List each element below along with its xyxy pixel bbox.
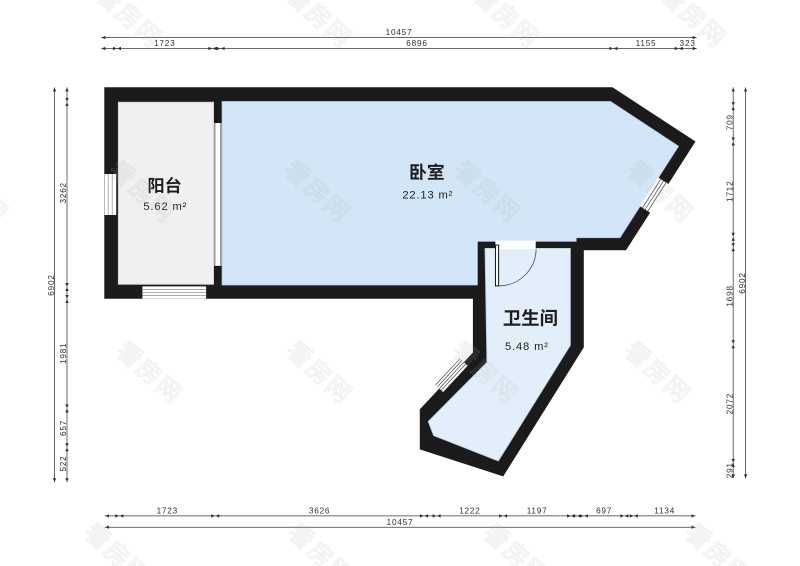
svg-text:6896: 6896 (406, 39, 427, 48)
svg-text:5.48 m²: 5.48 m² (505, 341, 549, 353)
svg-text:2072: 2072 (725, 393, 734, 414)
svg-text:10457: 10457 (386, 28, 413, 37)
svg-text:1723: 1723 (157, 507, 178, 516)
svg-text:657: 657 (59, 420, 68, 436)
svg-text:522: 522 (59, 455, 68, 471)
svg-text:697: 697 (596, 507, 612, 516)
svg-text:3262: 3262 (59, 182, 68, 203)
svg-text:1723: 1723 (154, 39, 175, 48)
svg-text:22.13 m²: 22.13 m² (402, 190, 453, 202)
svg-text:10457: 10457 (387, 518, 414, 527)
svg-text:1155: 1155 (636, 39, 657, 48)
svg-text:709: 709 (725, 114, 734, 130)
svg-text:1222: 1222 (459, 507, 480, 516)
svg-text:291: 291 (725, 462, 734, 478)
svg-text:3626: 3626 (309, 507, 330, 516)
svg-text:6902: 6902 (738, 272, 747, 293)
svg-text:1981: 1981 (59, 343, 68, 364)
svg-text:1197: 1197 (527, 507, 548, 516)
svg-text:323: 323 (680, 39, 696, 48)
svg-text:6902: 6902 (47, 274, 56, 295)
svg-text:1712: 1712 (725, 180, 734, 201)
svg-text:1134: 1134 (654, 507, 675, 516)
svg-text:1698: 1698 (725, 285, 734, 306)
